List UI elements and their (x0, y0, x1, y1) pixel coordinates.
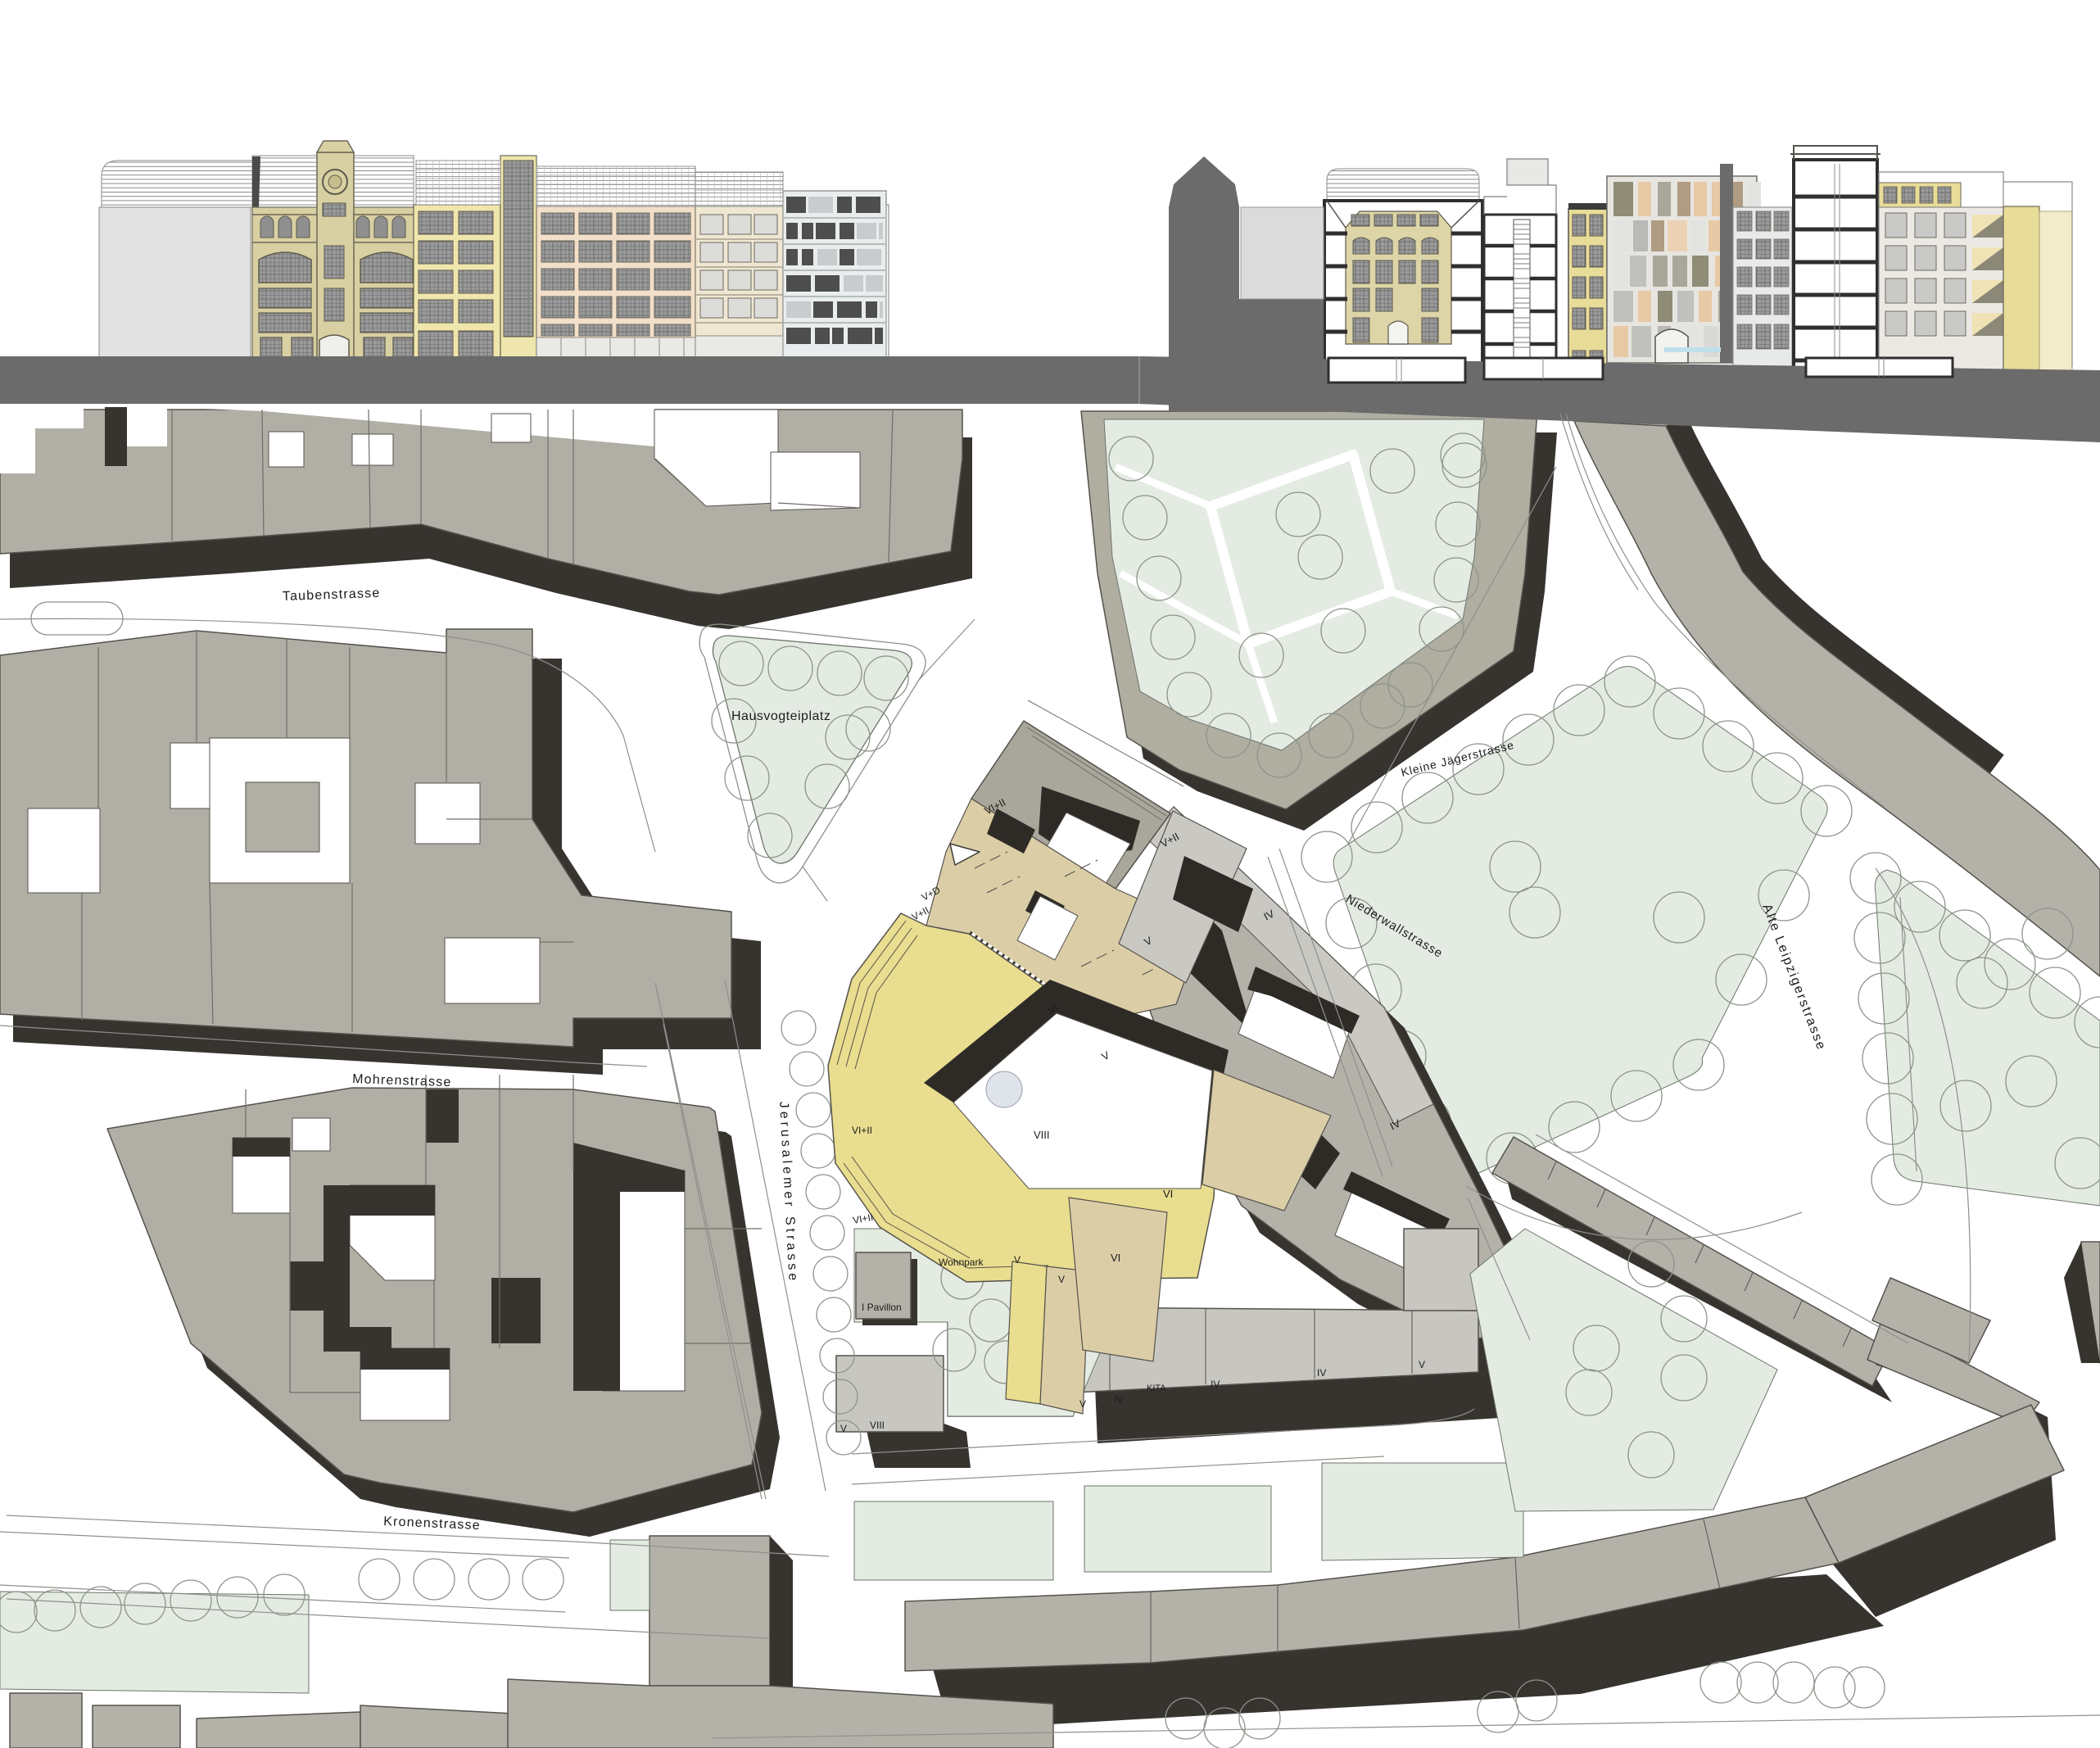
svg-text:Hausvogteiplatz: Hausvogteiplatz (731, 709, 830, 723)
svg-text:VI: VI (1163, 1188, 1173, 1200)
svg-text:V: V (1058, 1274, 1065, 1285)
svg-text:I Pavillon: I Pavillon (862, 1302, 902, 1313)
svg-text:VIII: VIII (870, 1420, 885, 1431)
svg-text:VI: VI (1111, 1252, 1120, 1264)
svg-text:KITA: KITA (1147, 1383, 1166, 1393)
svg-text:IV: IV (1211, 1379, 1220, 1390)
svg-text:Wohnpark: Wohnpark (939, 1257, 984, 1268)
svg-text:V: V (1419, 1359, 1425, 1370)
svg-text:VIII: VIII (1034, 1129, 1050, 1141)
svg-text:IV: IV (1317, 1367, 1326, 1379)
svg-text:V: V (1014, 1254, 1021, 1266)
svg-text:V: V (1079, 1398, 1086, 1410)
svg-text:VI+II: VI+II (852, 1125, 872, 1136)
svg-text:V: V (840, 1423, 847, 1434)
svg-text:IV: IV (1114, 1393, 1123, 1405)
